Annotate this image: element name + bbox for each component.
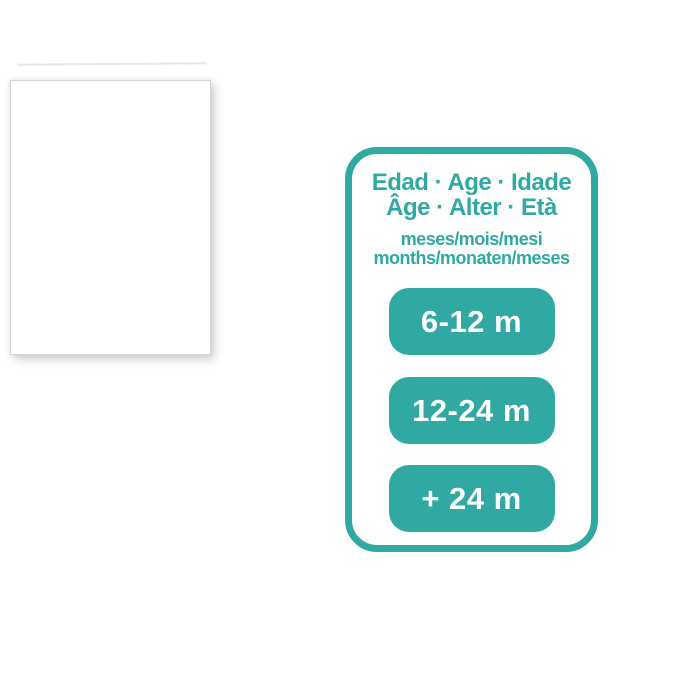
age-title-line2: Âge · Alter · Età <box>352 195 591 220</box>
age-subtitle-line2: months/monaten/meses <box>352 249 591 268</box>
age-badge-24m-plus: + 24 m <box>389 465 555 532</box>
age-subtitle: meses/mois/mesi months/monaten/meses <box>352 230 591 268</box>
age-badge-12-24m: 12-24 m <box>389 377 555 444</box>
age-subtitle-line1: meses/mois/mesi <box>352 230 591 249</box>
age-title: Edad · Age · Idade Âge · Alter · Età <box>352 170 591 220</box>
back-sheet-edge <box>17 62 207 65</box>
age-badge-6-12m: 6-12 m <box>389 288 555 355</box>
age-title-line1: Edad · Age · Idade <box>352 170 591 195</box>
product-infographic: Edad · Age · Idade Âge · Alter · Età mes… <box>0 0 700 700</box>
age-chart-card: Edad · Age · Idade Âge · Alter · Età mes… <box>345 147 598 552</box>
blank-product-page <box>10 80 211 355</box>
